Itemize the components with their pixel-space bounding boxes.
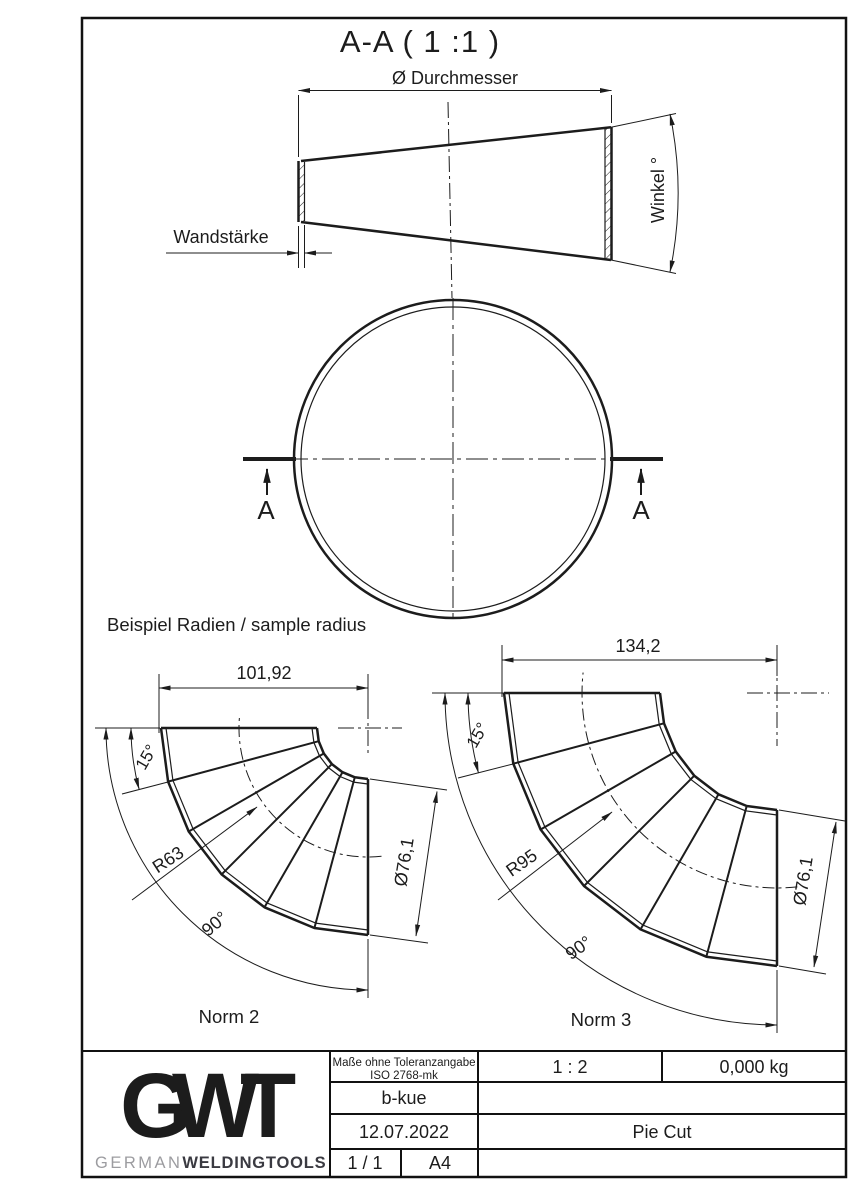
norm2-caption: Norm 2	[199, 1006, 260, 1027]
technical-drawing: A-A ( 1 :1 ) Ø Durchmesser Wandstärke Wi…	[0, 0, 868, 1199]
sheet-number-field: 1 / 1	[347, 1153, 382, 1173]
logo-letter-t: T	[240, 1055, 296, 1157]
part-name-field: Pie Cut	[632, 1122, 691, 1142]
section-view-title: A-A ( 1 :1 )	[340, 24, 500, 59]
angle-label: Winkel °	[648, 157, 668, 223]
weight-field: 0,000 kg	[719, 1057, 788, 1077]
tolerance-note-line2: ISO 2768-mk	[370, 1070, 438, 1082]
scale-field: 1 : 2	[552, 1057, 587, 1077]
norm2-length-dimension-text: 101,92	[236, 663, 291, 683]
paper-format-field: A4	[429, 1153, 451, 1173]
wall-hatching	[299, 162, 304, 221]
norm3-caption: Norm 3	[571, 1009, 632, 1030]
creator-field: b-kue	[381, 1088, 426, 1108]
wall-hatching	[606, 129, 612, 259]
date-field: 12.07.2022	[359, 1122, 449, 1142]
brand-text-bold: WELDINGTOOLS	[182, 1154, 326, 1172]
section-label-right: A	[632, 495, 650, 525]
diameter-label: Ø Durchmesser	[392, 68, 518, 88]
logo-brand-text: GERMANWELDINGTOOLS	[95, 1154, 326, 1172]
samples-heading: Beispiel Radien / sample radius	[107, 614, 366, 635]
section-label-left: A	[257, 495, 275, 525]
gwt-logo: G W T GERMANWELDINGTOOLS	[95, 1055, 326, 1172]
norm3-length-dimension-text: 134,2	[615, 636, 660, 656]
wall-thickness-label: Wandstärke	[173, 227, 268, 247]
brand-text-light: GERMAN	[95, 1154, 182, 1172]
page-background	[0, 0, 868, 1199]
drawing-sheet: A-A ( 1 :1 ) Ø Durchmesser Wandstärke Wi…	[0, 0, 868, 1199]
tolerance-note-line1: Maße ohne Toleranzangabe	[332, 1057, 475, 1069]
